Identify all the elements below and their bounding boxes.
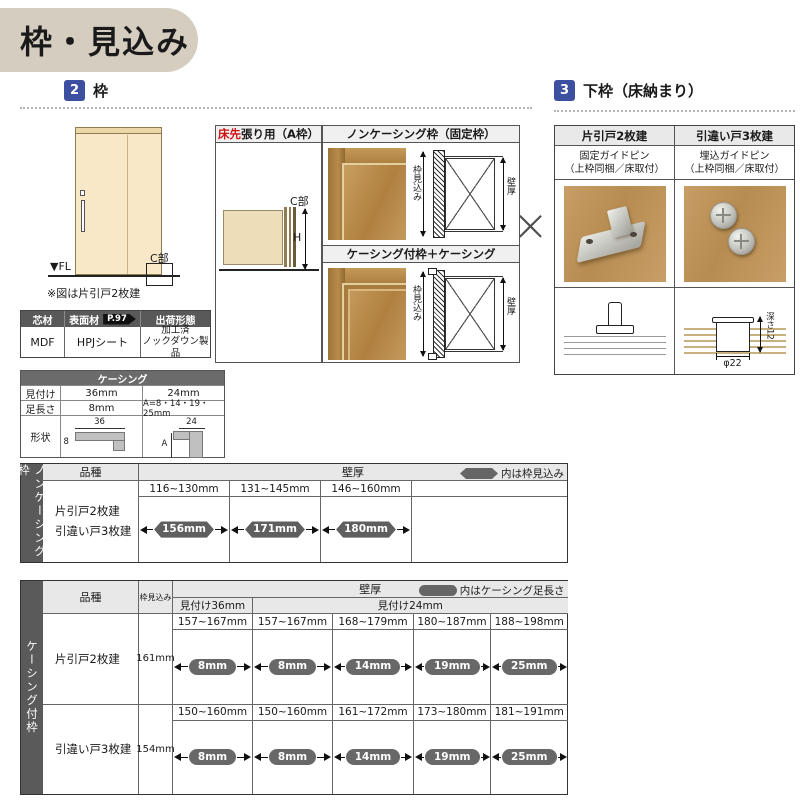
wall-range-column: 150~160mm 8mm (253, 705, 333, 795)
arrowhead-left-icon (140, 526, 147, 534)
noncasing-note-text: 内は枠見込み (501, 466, 564, 481)
wall-thickness-header: 壁厚 内は枠見込み (139, 464, 567, 480)
noncasing-frame-half: ノンケーシング枠（固定枠） 枠見込み 壁厚 (323, 126, 519, 245)
wall-range-column: 181~191mm 25mm (491, 705, 568, 795)
wall-range: 131~145mm (230, 481, 320, 497)
section2-header: 2 枠 (64, 80, 108, 101)
dimension-arrow-row: 8mm (253, 659, 332, 675)
catalog-page: 枠・見込み 2 枠 3 下枠（床納まり） ▼FL C部 ※図は片引戸2枚建 床先… (0, 0, 800, 800)
material-table-body: MDF HPJシート 加工済 ノックダウン製品 (21, 327, 210, 357)
arrowhead-left-icon (254, 663, 261, 671)
embedded-pin-diagram-cell: φ22 深さ12 (675, 288, 794, 374)
casing-side-label: ケーシング付枠 (24, 640, 40, 735)
noncasing-corner-photo (328, 148, 406, 240)
dim-line (261, 666, 268, 667)
casing-spec-title: ケーシング (21, 371, 224, 385)
door-handle-bar (81, 200, 85, 232)
dim-line (237, 666, 244, 667)
dim-line (238, 529, 244, 530)
badge-zone: 156mm (139, 497, 229, 562)
floor-hatch-line (564, 336, 666, 337)
dimension-arrow-row: 14mm (333, 659, 413, 675)
floor-level-label: ▼FL (50, 260, 71, 273)
arrowhead-left-icon (254, 753, 261, 761)
casing-note-text: 内はケーシング足長さ (460, 583, 565, 598)
arrowhead-right-icon (324, 753, 331, 761)
core-material-header: 芯材 (21, 311, 65, 327)
arrowhead-right-icon (403, 526, 410, 534)
arrowhead-left-icon (415, 753, 422, 761)
mitsuke-36-header: 見付け36mm (173, 598, 253, 613)
wall-header-label: 壁厚 (342, 464, 364, 480)
leg-length-36: 8mm (61, 401, 143, 415)
kind-cell: 片引戸2枚建 (43, 614, 139, 704)
casing-box-header: ケーシング付枠＋ケーシング (323, 246, 519, 263)
leg-length-badge: 8mm (189, 659, 236, 675)
dimension-arrow-row: 19mm (414, 749, 490, 765)
floor-hatch-line (564, 342, 666, 343)
leg-length-badge: 25mm (502, 659, 557, 675)
fixed-guide-pin-cell (555, 180, 675, 287)
embedded-pin-cap (712, 317, 754, 323)
hex-badge-icon (460, 468, 498, 479)
casing-dimension-table: ケーシング付枠 品種 枠見込み 壁厚 内はケーシング足長さ 見付け36mm (20, 580, 568, 795)
dim-line (75, 428, 125, 429)
wall-range: 150~160mm (253, 705, 332, 721)
badge-zone: 8mm (253, 721, 332, 795)
frame-depth-label: 枠見込み (410, 285, 423, 321)
frame-depth-label: 枠見込み (410, 165, 423, 201)
depth-dimension-line (760, 317, 761, 352)
fixed-pin-diagram-cell (555, 288, 675, 374)
frame-bar (284, 207, 287, 267)
arrowhead-left-icon (334, 663, 341, 671)
s3-col2-header: 引違い戸3枚建 (675, 126, 794, 145)
wall-range-column: 146~160mm 180mm (321, 481, 412, 562)
wall-range-column: 157~167mm 8mm (253, 614, 333, 704)
dim-8: 8 (64, 437, 69, 447)
wall-range: 168~179mm (333, 614, 413, 630)
dim-line (317, 666, 324, 667)
empty-range-cell (412, 481, 567, 497)
kind-cell: 引違い戸3枚建 (43, 705, 139, 795)
door-top-rail (76, 128, 161, 134)
kind-header: 品種 (43, 464, 139, 480)
section3-header: 3 下枠（床納まり） (554, 80, 703, 101)
dim-line (181, 757, 188, 758)
badge-zone: 8mm (253, 630, 332, 704)
embedded-pin-body (716, 322, 750, 352)
empty-column (412, 481, 567, 562)
wall-range: 157~167mm (253, 614, 332, 630)
guide-pin-disc (710, 202, 737, 229)
fixed-guide-pin-photo (564, 186, 666, 282)
s3-sub-row: 固定ガイドピン （上枠同梱／床取付） 埋込ガイドピン （上枠同梱／床取付） (555, 146, 794, 180)
arrowhead-right-icon (483, 663, 490, 671)
dim-line (341, 666, 345, 667)
dim-line (499, 757, 501, 758)
arrowhead-right-icon (312, 526, 319, 534)
dimension-arrow-row: 25mm (491, 749, 568, 765)
dim-line (147, 529, 153, 530)
badge-zone: 14mm (333, 630, 413, 704)
noncasing-box-body: 枠見込み 壁厚 (323, 143, 519, 245)
wall-range: 180~187mm (414, 614, 490, 630)
dim-line (179, 428, 205, 429)
dim-line (317, 757, 324, 758)
c-section-label: C部 (290, 193, 309, 209)
c-section-callout-box (146, 263, 173, 286)
wall-thickness-label: 壁厚 (504, 177, 517, 195)
surface-header-label: 表面材 (69, 312, 99, 327)
value-columns: 150~160mm 8mm 150~160mm 8mm 161~172mm 14… (173, 705, 568, 795)
casing-side-strip: ケーシング付枠 (21, 581, 43, 794)
wall-thickness-label: 壁厚 (504, 297, 517, 315)
noncasing-box-header: ノンケーシング枠（固定枠） (323, 126, 519, 143)
casing-profile-24: 24 A (145, 417, 223, 457)
noncasing-header-row: 品種 壁厚 内は枠見込み (43, 464, 567, 481)
screw-hole (630, 232, 637, 237)
s3-diagram-row: φ22 深さ12 (555, 288, 794, 374)
page-title: 枠・見込み (0, 8, 198, 72)
wall-range: 116~130mm (139, 481, 229, 497)
wall-range-column: 188~198mm 25mm (491, 614, 568, 704)
door-panel-divider (127, 135, 128, 274)
frame-depth-header: 枠見込み (139, 581, 173, 613)
embedded-guide-pin-cell (675, 180, 794, 287)
floor-layer-line (684, 352, 786, 354)
page-ref-badge: P.97 (103, 314, 136, 325)
wall-range-column: 116~130mm 156mm (139, 481, 230, 562)
arrowhead-right-icon (560, 663, 567, 671)
shape-row: 形状 36 8 24 A (21, 415, 224, 457)
wall-range: 150~160mm (173, 705, 252, 721)
frame-depth-badge: 180mm (336, 521, 396, 537)
frame-bar (289, 207, 291, 267)
badge-zone: 19mm (414, 630, 490, 704)
section2-divider (20, 107, 532, 109)
wall-surface-line (445, 231, 503, 232)
leg-length-row: 足長さ 8mm A=8・14・19・25mm (21, 400, 224, 415)
dim-line (341, 757, 345, 758)
noncasing-note: 内は枠見込み (460, 466, 564, 481)
frame-hatched-bar (433, 150, 445, 238)
noncasing-data-row: 片引戸2枚建 引違い戸3枚建 116~130mm 156mm 131~145mm (43, 481, 567, 562)
s3-col1-header: 片引戸2枚建 (555, 126, 675, 145)
arrowhead-left-icon (415, 663, 422, 671)
dim-36: 36 (75, 417, 125, 427)
wall-header-area: 壁厚 内はケーシング足長さ 見付け36mm 見付け24mm (173, 581, 568, 613)
pill-badge-icon (419, 585, 457, 596)
noncasing-value-columns: 116~130mm 156mm 131~145mm 171mm (139, 481, 567, 562)
empty-badge-zone (412, 497, 567, 562)
shape-24-cell: 24 A (143, 416, 224, 457)
casing-section-diagram: 枠見込み 壁厚 (409, 267, 517, 361)
dim-line (422, 666, 424, 667)
arrowhead-right-icon (483, 753, 490, 761)
arrowhead-right-icon (405, 663, 412, 671)
casing-tab (428, 268, 437, 275)
casing-data-row-1: 片引戸2枚建 161mm 157~167mm 8mm 157~167mm 8mm… (43, 614, 568, 705)
wall-range: 188~198mm (491, 614, 568, 630)
wall-range-column: 168~179mm 14mm (333, 614, 414, 704)
arrowhead-left-icon (174, 753, 181, 761)
wall-range-column: 157~167mm 8mm (173, 614, 253, 704)
core-material-value: MDF (21, 327, 65, 357)
aframe-header-red: 床先 (218, 126, 241, 142)
wall-section (445, 158, 495, 230)
badge-zone: 25mm (491, 721, 568, 795)
badge-zone: 8mm (173, 721, 252, 795)
wall-range: 181~191mm (491, 705, 568, 721)
wood-panel (342, 283, 406, 360)
noncasing-dimension-table: ノンケーシング枠 品種 壁厚 内は枠見込み 片引戸2枚建 引違い戸3枚建 116… (20, 463, 568, 563)
badge-zone: 180mm (321, 497, 411, 562)
badge-zone: 25mm (491, 630, 568, 704)
s3-col2-sub: 埋込ガイドピン （上枠同梱／床取付） (675, 146, 794, 179)
arrowhead-right-icon (244, 663, 251, 671)
dim-a: A (162, 439, 168, 449)
floor-hatch-line (564, 354, 666, 355)
dim-line (499, 666, 501, 667)
frame-depth-dimension (423, 152, 424, 236)
noncasing-side-strip: ノンケーシング枠 (21, 464, 43, 562)
floor-slab (223, 210, 283, 265)
wall-range-column: 173~180mm 19mm (414, 705, 491, 795)
arrowhead-left-icon (492, 663, 499, 671)
wall-range-column: 161~172mm 14mm (333, 705, 414, 795)
door-panels (75, 127, 162, 275)
arrowhead-right-icon (560, 753, 567, 761)
dimension-arrow-row: 8mm (173, 659, 252, 675)
casing-note: 内はケーシング足長さ (419, 583, 565, 598)
floor-first-aframe-box: 床先張り用（A枠） C部 H (215, 125, 322, 363)
arrowhead-right-icon (405, 753, 412, 761)
wood-panel (342, 163, 406, 240)
wall-surface-line (445, 276, 503, 277)
noncasing-section-diagram: 枠見込み 壁厚 (409, 147, 517, 241)
embedded-guide-pin-photo (684, 186, 786, 282)
mitsuke-sub-header: 見付け36mm 見付け24mm (173, 598, 568, 613)
leg-length-24: A=8・14・19・25mm (143, 401, 224, 415)
wall-range-column: 180~187mm 19mm (414, 614, 491, 704)
casing-spec-table: ケーシング 見付け 36mm 24mm 足長さ 8mm A=8・14・19・25… (20, 370, 225, 458)
arrowhead-left-icon (174, 663, 181, 671)
leg-length-badge: 8mm (189, 749, 236, 765)
noncasing-table-main: 品種 壁厚 内は枠見込み 片引戸2枚建 引違い戸3枚建 116~130mm (43, 464, 567, 562)
shape-36-cell: 36 8 (61, 416, 143, 457)
frame-depth-dimension (423, 272, 424, 356)
wall-range: 173~180mm (414, 705, 490, 721)
frame-types-box: ノンケーシング枠（固定枠） 枠見込み 壁厚 (322, 125, 520, 363)
frame-depth-badge: 171mm (245, 521, 305, 537)
wall-surface-line (445, 156, 503, 157)
material-table: 芯材 表面材 P.97 出荷形態 MDF HPJシート 加工済 ノックダウン製品 (20, 310, 211, 358)
s3-col1-sub: 固定ガイドピン （上枠同梱／床取付） (555, 146, 675, 179)
floor-hatch-line (564, 348, 666, 349)
leg-length-badge: 14mm (346, 659, 401, 675)
h-dimension-label: H (293, 231, 301, 244)
dimension-arrow-row: 156mm (139, 521, 229, 537)
h-dimension-line (305, 209, 306, 269)
badge-zone: 19mm (414, 721, 490, 795)
frame-hatched-bar (433, 270, 445, 358)
profile-hook (113, 440, 125, 451)
dimension-arrow-row: 8mm (253, 749, 332, 765)
wall-range-column: 150~160mm 8mm (173, 705, 253, 795)
frame-depth-cell: 154mm (139, 705, 173, 795)
fixed-pin-diagram (560, 292, 670, 370)
dimension-arrow-row: 8mm (173, 749, 252, 765)
dim-24: 24 (179, 417, 205, 427)
leg-length-badge: 25mm (502, 749, 557, 765)
aframe-box-header: 床先張り用（A枠） (216, 126, 321, 143)
mitsuke-24-header: 見付け24mm (253, 598, 568, 613)
dim-line (237, 757, 244, 758)
diameter-label: φ22 (716, 358, 750, 369)
door-note: ※図は片引戸2枚建 (47, 285, 140, 301)
dim-line (329, 529, 335, 530)
frame-depth-badge: 156mm (154, 521, 214, 537)
mitsuke-36: 36mm (61, 386, 143, 400)
frame-depth-cell: 161mm (139, 614, 173, 704)
leg-length-label: 足長さ (21, 401, 61, 415)
depth-label: 深さ12 (764, 312, 776, 340)
screw-hole (586, 239, 593, 244)
dim-line (261, 757, 268, 758)
dimension-arrow-row: 25mm (491, 659, 568, 675)
embedded-pin-diagram: φ22 深さ12 (680, 292, 790, 370)
sliding-door-illustration: ▼FL C部 ※図は片引戸2枚建 (45, 120, 220, 305)
casing-frame-half: ケーシング付枠＋ケーシング 枠見込み 壁厚 (323, 245, 519, 364)
dimension-arrow-row: 19mm (414, 659, 490, 675)
leg-length-badge: 8mm (269, 749, 316, 765)
casing-box-body: 枠見込み 壁厚 (323, 263, 519, 365)
arrowhead-right-icon (324, 663, 331, 671)
wall-thickness-header: 壁厚 内はケーシング足長さ (173, 581, 568, 598)
section2-title: 枠 (93, 80, 108, 101)
section3-title: 下枠（床納まり） (583, 80, 703, 101)
wall-range-column: 131~145mm 171mm (230, 481, 321, 562)
section3-divider (554, 110, 795, 112)
cross-multiply-mark: × (512, 204, 549, 248)
shipping-form-value: 加工済 ノックダウン製品 (141, 327, 210, 357)
wall-range: 157~167mm (173, 614, 252, 630)
fixed-pin-stem (608, 302, 622, 326)
s3-photo-row (555, 180, 794, 288)
aframe-header-rest: 張り用（A枠） (241, 126, 319, 142)
wall-range: 146~160mm (321, 481, 411, 497)
dim-line (171, 433, 172, 457)
badge-zone: 171mm (230, 497, 320, 562)
wall-section (445, 278, 495, 350)
surface-material-header: 表面材 P.97 (65, 311, 141, 327)
aframe-cross-section-diagram: C部 H (216, 143, 321, 363)
diameter-dimension-line (716, 356, 750, 357)
arrowhead-left-icon (492, 753, 499, 761)
casing-data-row-2: 引違い戸3枚建 154mm 150~160mm 8mm 150~160mm 8m… (43, 705, 568, 795)
kind-header: 品種 (43, 581, 139, 613)
dimension-arrow-row: 14mm (333, 749, 413, 765)
wall-range: 161~172mm (333, 705, 413, 721)
fixed-pin-base (596, 325, 634, 334)
leg-length-badge: 14mm (346, 749, 401, 765)
wall-header-label: 壁厚 (359, 581, 381, 597)
mitsuke-label: 見付け (21, 386, 61, 400)
dimension-arrow-row: 171mm (230, 521, 320, 537)
dim-line (422, 757, 424, 758)
section3-number-badge: 3 (554, 80, 575, 101)
casing-header-rows: 品種 枠見込み 壁厚 内はケーシング足長さ 見付け36mm 見付け24mm (43, 581, 568, 614)
badge-zone: 14mm (333, 721, 413, 795)
dim-line (181, 666, 188, 667)
guide-pin-disc (728, 228, 755, 255)
casing-table-main: 品種 枠見込み 壁厚 内はケーシング足長さ 見付け36mm 見付け24mm (43, 581, 568, 794)
surface-material-value: HPJシート (65, 327, 141, 357)
leg-length-badge: 19mm (425, 659, 480, 675)
value-columns: 157~167mm 8mm 157~167mm 8mm 168~179mm 14… (173, 614, 568, 704)
section2-number-badge: 2 (64, 80, 85, 101)
kind-cell: 片引戸2枚建 引違い戸3枚建 (43, 481, 139, 562)
arrowhead-left-icon (231, 526, 238, 534)
arrowhead-left-icon (322, 526, 329, 534)
arrowhead-left-icon (334, 753, 341, 761)
profile-leg (189, 431, 203, 458)
casing-tab (428, 353, 437, 360)
dimension-arrow-row: 180mm (321, 521, 411, 537)
casing-corner-photo (328, 268, 406, 360)
badge-zone: 8mm (173, 630, 252, 704)
bottom-frame-table: 片引戸2枚建 引違い戸3枚建 固定ガイドピン （上枠同梱／床取付） 埋込ガイドピ… (554, 125, 795, 375)
wall-surface-line (445, 351, 503, 352)
arrowhead-right-icon (221, 526, 228, 534)
door-handle-latch (80, 190, 85, 196)
shape-label: 形状 (21, 416, 61, 457)
leg-length-badge: 8mm (269, 659, 316, 675)
casing-profile-36: 36 8 (63, 417, 141, 457)
s3-header-row: 片引戸2枚建 引違い戸3枚建 (555, 126, 794, 146)
arrowhead-right-icon (244, 753, 251, 761)
leg-length-badge: 19mm (425, 749, 480, 765)
